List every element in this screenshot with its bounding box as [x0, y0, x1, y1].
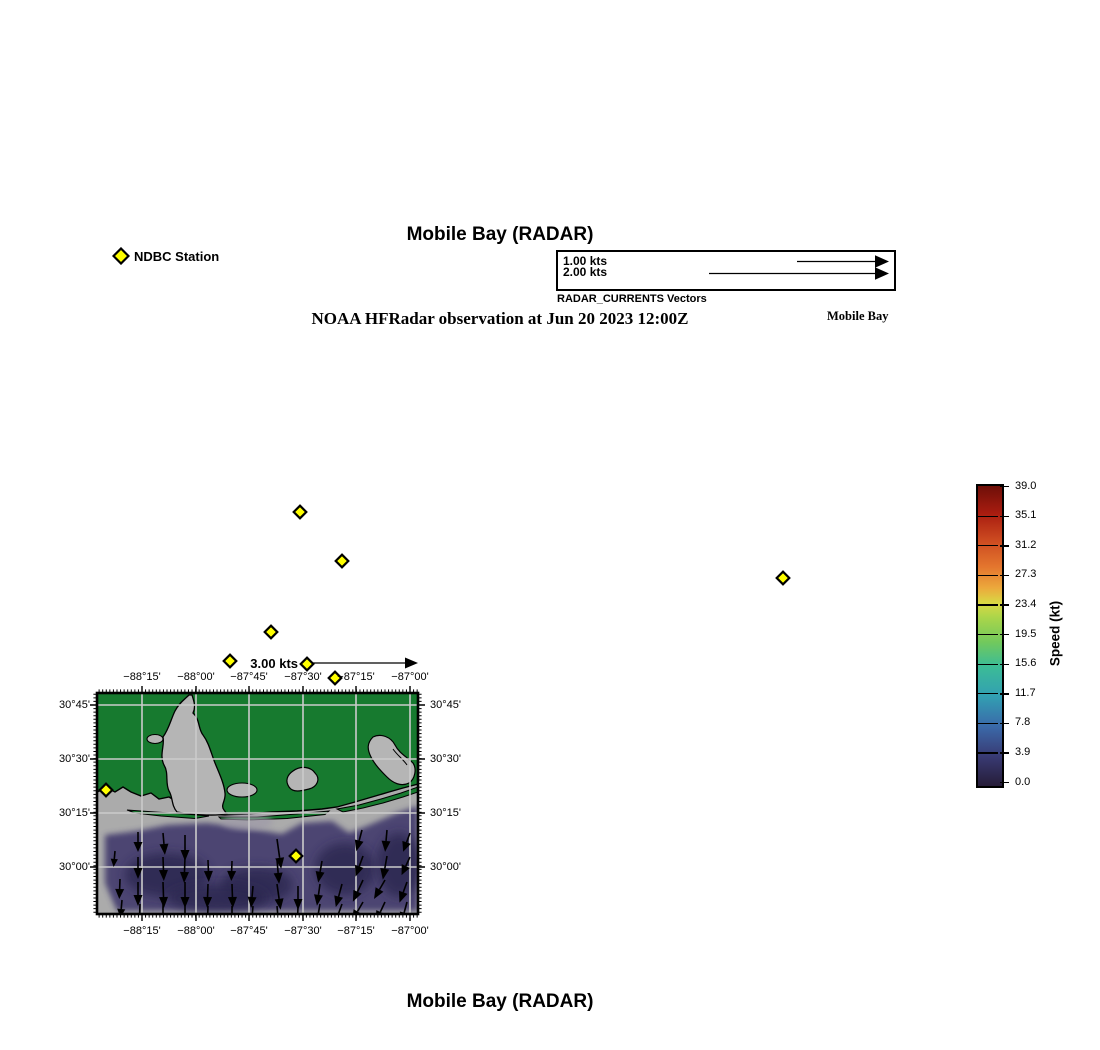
ndbc-station-legend: NDBC Station: [112, 247, 219, 265]
figure-title: Mobile Bay (RADAR): [300, 224, 700, 246]
x-tick-label-bottom: −87°15': [330, 925, 382, 937]
observation-subtitle: NOAA HFRadar observation at Jun 20 2023 …: [250, 309, 750, 329]
station-diamond: [777, 572, 790, 585]
colorbar-tick-label: 23.4: [1015, 598, 1036, 610]
y-tick-label-right: 30°15': [430, 807, 482, 819]
current-light-patch: [221, 814, 273, 830]
y-tick-label-right: 30°45': [430, 699, 482, 711]
colorbar-tick-label: 27.3: [1015, 568, 1036, 580]
colorbar-tick-stub: [1000, 782, 1009, 783]
region-label: Mobile Bay: [827, 309, 888, 324]
vector-scale-box: 1.00 kts 2.00 kts: [556, 250, 896, 291]
station-diamond: [265, 626, 278, 639]
colorbar-tick-line: [978, 545, 998, 546]
station-diamond: [294, 506, 307, 519]
x-tick-label-bottom: −87°45': [223, 925, 275, 937]
colorbar-tick-label: 39.0: [1015, 480, 1036, 492]
figure-canvas: Mobile Bay (RADAR) NDBC Station 1.00 kts…: [0, 0, 1100, 1050]
legend-arrow-head: [875, 267, 889, 279]
colorbar-tick-line: [978, 634, 998, 635]
scale-arrow-head: [405, 658, 418, 669]
colorbar-tick-label: 3.9: [1015, 746, 1030, 758]
colorbar-tick-line: [978, 693, 998, 694]
bay-arm-west: [147, 735, 163, 744]
colorbar-tick-stub: [1000, 575, 1009, 576]
colorbar-tick-stub: [1000, 604, 1009, 605]
ndbc-diamond-icon: [112, 247, 130, 265]
scale-arrow-label: 3.00 kts: [238, 656, 298, 671]
y-tick-label-left: 30°30': [38, 753, 90, 765]
colorbar-tick-stub: [1000, 664, 1009, 665]
colorbar-tick-line: [978, 516, 998, 517]
x-tick-label-top: −88°00': [170, 671, 222, 683]
colorbar-axis-label: Speed (kt): [1048, 564, 1063, 704]
y-tick-label-left: 30°45': [38, 699, 90, 711]
figure-footer-title: Mobile Bay (RADAR): [300, 991, 700, 1013]
map-plot: [87, 683, 432, 931]
colorbar-tick-stub: [1000, 634, 1009, 635]
colorbar-tick-label: 0.0: [1015, 776, 1030, 788]
colorbar-tick-stub: [1000, 545, 1009, 546]
station-diamond: [336, 555, 349, 568]
colorbar-tick-stub: [1000, 723, 1009, 724]
legend-arrow-head: [875, 255, 889, 267]
colorbar-tick-label: 31.2: [1015, 539, 1036, 551]
y-tick-label-right: 30°30': [430, 753, 482, 765]
colorbar-tick-line: [978, 723, 998, 724]
colorbar-tick-label: 19.5: [1015, 628, 1036, 640]
vector-scale-arrows: [558, 252, 894, 289]
bay-arm-east: [227, 783, 257, 797]
colorbar-tick-label: 15.6: [1015, 657, 1036, 669]
y-tick-label-left: 30°15': [38, 807, 90, 819]
colorbar-tick-line: [978, 664, 998, 665]
station-diamond: [301, 658, 314, 671]
ndbc-legend-label: NDBC Station: [134, 249, 219, 264]
map-content: [90, 686, 425, 928]
colorbar-tick-line: [978, 604, 998, 605]
x-tick-label-bottom: −88°00': [170, 925, 222, 937]
colorbar-tick-stub: [1000, 516, 1009, 517]
current-dark-patch: [315, 843, 375, 895]
colorbar-tick-line: [978, 752, 998, 753]
colorbar-tick-line: [978, 575, 998, 576]
colorbar-tick-stub: [1000, 752, 1009, 753]
colorbar-gradient: [978, 486, 1002, 786]
colorbar-tick-stub: [1000, 486, 1009, 487]
x-tick-label-top: −87°30': [277, 671, 329, 683]
x-tick-label-bottom: −88°15': [116, 925, 168, 937]
station-diamond: [224, 655, 237, 668]
x-tick-label-top: −87°45': [223, 671, 275, 683]
colorbar-tick-label: 11.7: [1015, 687, 1036, 699]
x-tick-label-top: −87°00': [384, 671, 436, 683]
x-tick-label-bottom: −87°00': [384, 925, 436, 937]
x-tick-label-bottom: −87°30': [277, 925, 329, 937]
colorbar-tick-label: 35.1: [1015, 509, 1036, 521]
colorbar-tick-stub: [1000, 693, 1009, 694]
y-tick-label-right: 30°00': [430, 861, 482, 873]
colorbar: [976, 484, 1004, 788]
colorbar-tick-label: 7.8: [1015, 716, 1030, 728]
y-tick-label-left: 30°00': [38, 861, 90, 873]
x-tick-label-top: −87°15': [330, 671, 382, 683]
x-tick-label-top: −88°15': [116, 671, 168, 683]
vector-legend-title: RADAR_CURRENTS Vectors: [557, 293, 707, 305]
